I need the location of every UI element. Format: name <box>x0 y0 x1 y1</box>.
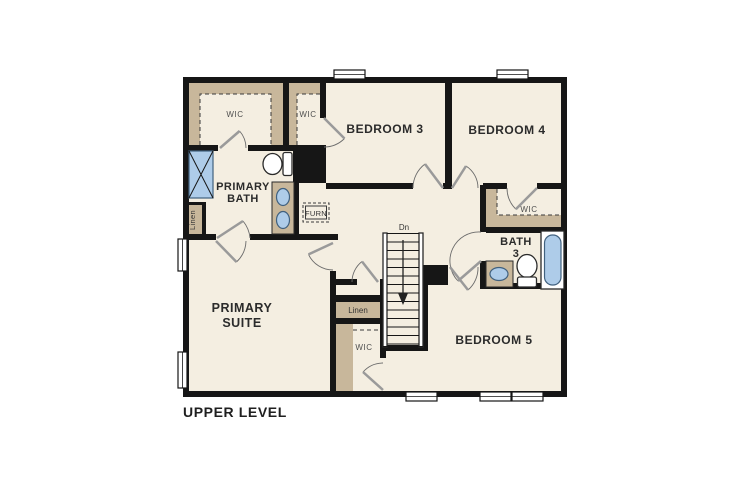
bathtub-fixture <box>541 231 564 289</box>
chase-block <box>422 265 448 285</box>
room-label-bedroom5: BEDROOM 5 <box>455 333 532 347</box>
room-label-primary-suite-line2: SUITE <box>222 316 261 330</box>
toilet-fixture-primary <box>263 153 292 176</box>
sink-fixture-bath3 <box>486 261 513 287</box>
room-label-bath3-line2: 3 <box>513 248 520 260</box>
toilet-fixture-bath3 <box>517 255 537 288</box>
label-linen-upper: Linen <box>188 210 197 230</box>
room-label-wic-bedroom5: WIC <box>355 343 372 352</box>
label-linen-lower: Linen <box>348 306 368 315</box>
room-label-wic-primary: WIC <box>226 110 243 119</box>
level-title: UPPER LEVEL <box>183 404 287 420</box>
room-label-bedroom3: BEDROOM 3 <box>346 122 423 136</box>
chase-block <box>293 148 326 183</box>
room-label-wic-bedroom4: WIC <box>520 205 537 214</box>
room-label-primary-bath-line2: BATH <box>227 193 259 205</box>
room-label-bath3-line1: BATH <box>500 236 532 248</box>
floor-plan-canvas: WIC WIC BEDROOM 3 BEDROOM 4 PRIMARY BATH… <box>0 0 750 500</box>
vanity-double-sink <box>272 182 294 234</box>
floor-plan: WIC WIC BEDROOM 3 BEDROOM 4 PRIMARY BATH… <box>0 0 750 500</box>
room-label-wic-bedroom3: WIC <box>299 110 316 119</box>
room-label-primary-suite-line1: PRIMARY <box>212 301 273 315</box>
label-furnace: FURN <box>305 209 327 218</box>
shower-fixture <box>189 151 213 198</box>
label-stairs-dn: Dn <box>399 223 409 232</box>
room-label-primary-bath-line1: PRIMARY <box>216 181 270 193</box>
room-label-bedroom4: BEDROOM 4 <box>468 123 545 137</box>
